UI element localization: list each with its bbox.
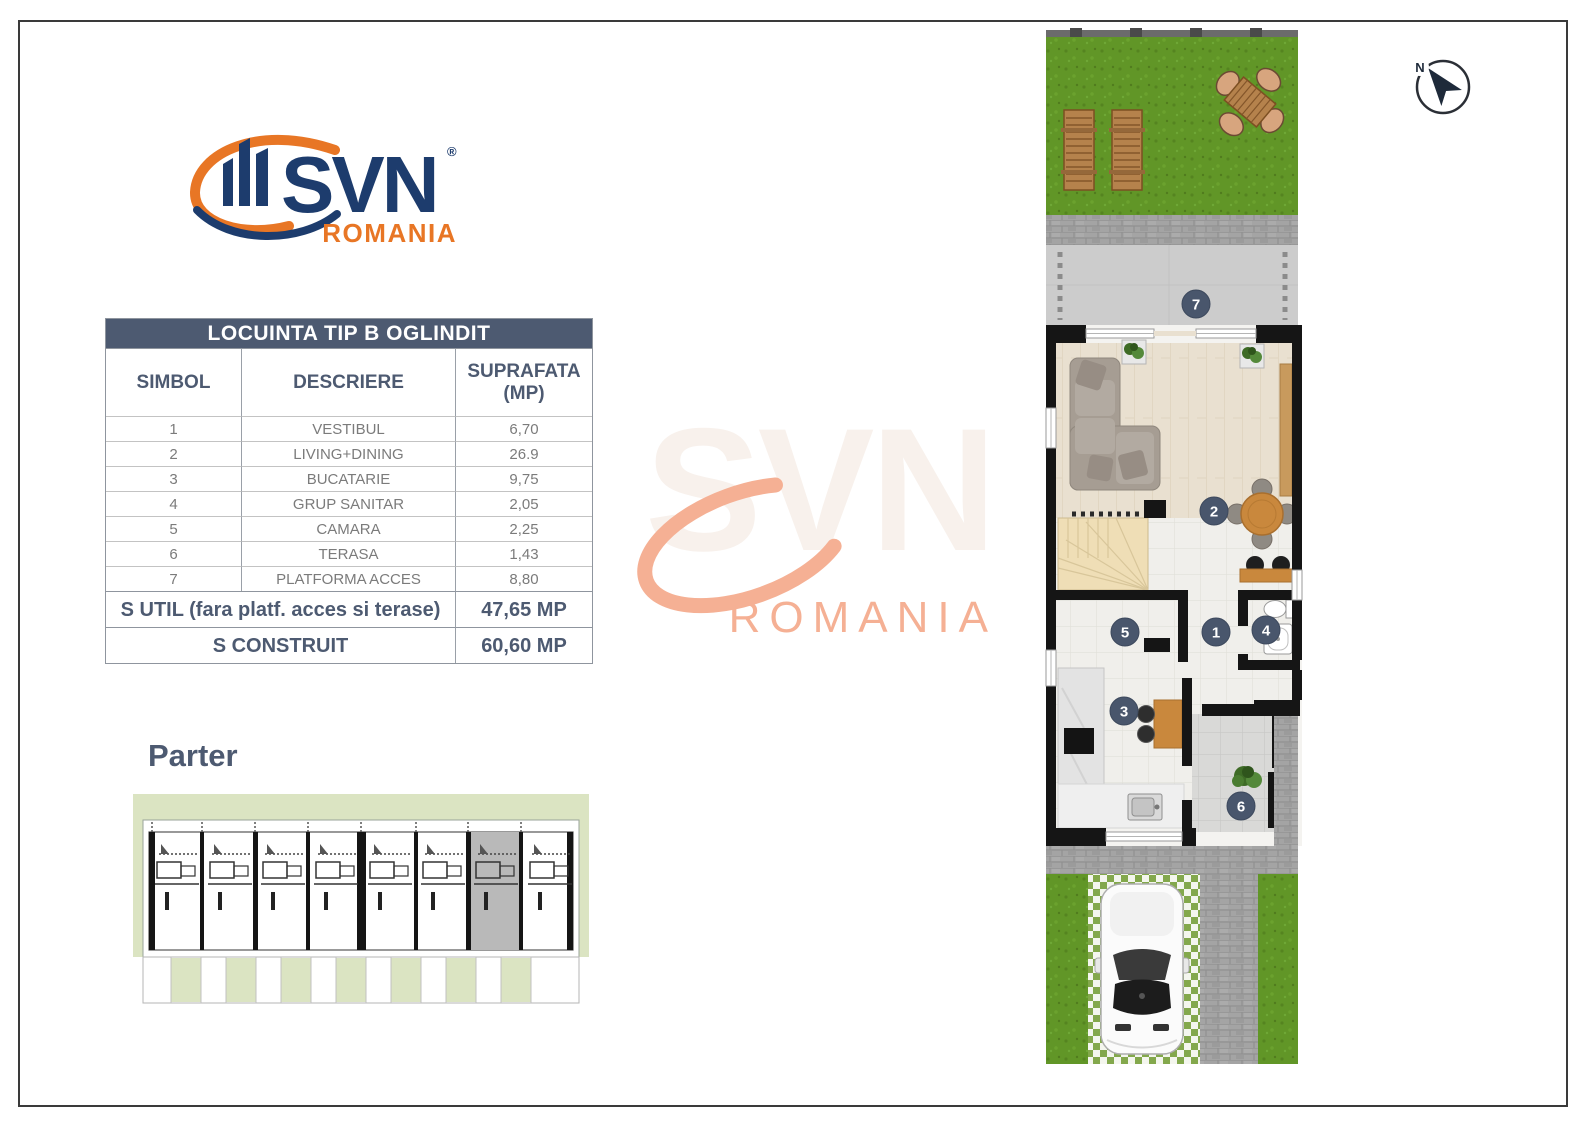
side-path (1274, 716, 1298, 846)
parking-path (1200, 874, 1258, 1064)
row-simbol: 7 (106, 566, 241, 591)
car (1095, 884, 1189, 1054)
compass-north-label: N (1415, 60, 1424, 75)
svg-text:2: 2 (1210, 504, 1218, 521)
svg-text:1: 1 (1212, 625, 1220, 642)
row-suprafata: 8,80 (455, 566, 592, 591)
marker-4: 4 (1252, 616, 1280, 644)
logo-bar-2 (239, 138, 250, 206)
access-path-bottom (1046, 846, 1298, 874)
row-simbol: 2 (106, 441, 241, 466)
site-plan (133, 788, 589, 1006)
summary-construit-value: 60,60 MP (455, 627, 592, 663)
row-descriere: BUCATARIE (241, 466, 455, 491)
site-highlighted-unit (468, 832, 521, 950)
plant-pot-1 (1122, 340, 1146, 364)
table-row: 2 LIVING+DINING 26.9 (106, 441, 592, 466)
row-simbol: 5 (106, 516, 241, 541)
table-row: 1 VESTIBUL 6,70 (106, 416, 592, 441)
row-descriere: PLATFORMA ACCES (241, 566, 455, 591)
row-descriere: VESTIBUL (241, 416, 455, 441)
house (1046, 325, 1302, 846)
row-simbol: 6 (106, 541, 241, 566)
header-suprafata: SUPRAFATA (MP) (455, 348, 592, 416)
logo-brand-text: SVN (281, 140, 437, 229)
marker-1: 1 (1202, 618, 1230, 646)
header-simbol: SIMBOL (106, 348, 241, 416)
marker-7: 7 (1182, 290, 1210, 318)
row-descriere: LIVING+DINING (241, 441, 455, 466)
svg-text:5: 5 (1121, 625, 1129, 642)
header-descriere: DESCRIERE (241, 348, 455, 416)
row-descriere: GRUP SANITAR (241, 491, 455, 516)
sun-lounger-1 (1061, 110, 1097, 190)
row-simbol: 4 (106, 491, 241, 516)
wood-door-panel (1280, 364, 1292, 496)
stove (1064, 728, 1094, 754)
svg-text:3: 3 (1120, 704, 1128, 721)
table-header-row: SIMBOL DESCRIERE SUPRAFATA (MP) (106, 348, 592, 416)
floor-label: Parter (148, 738, 238, 774)
row-simbol: 1 (106, 416, 241, 441)
entry-opening (1154, 331, 1196, 336)
svg-text:4: 4 (1262, 623, 1271, 640)
table-row: 3 BUCATARIE 9,75 (106, 466, 592, 491)
table-row: 7 PLATFORMA ACCES 8,80 (106, 566, 592, 591)
row-suprafata: 2,25 (455, 516, 592, 541)
summary-row-construit: S CONSTRUIT 60,60 MP (106, 627, 592, 663)
sun-lounger-2 (1109, 110, 1145, 190)
row-suprafata: 1,43 (455, 541, 592, 566)
kitchen-table (1154, 700, 1182, 748)
row-descriere: TERASA (241, 541, 455, 566)
parking-grass-left (1046, 874, 1088, 1064)
marker-5: 5 (1111, 618, 1139, 646)
logo-region-text: ROMANIA (322, 218, 457, 248)
garden (1046, 28, 1304, 215)
table-row: 5 CAMARA 2,25 (106, 516, 592, 541)
row-suprafata: 6,70 (455, 416, 592, 441)
marker-3: 3 (1110, 697, 1138, 725)
row-simbol: 3 (106, 466, 241, 491)
marker-2: 2 (1200, 497, 1228, 525)
logo-bar-1 (223, 158, 233, 206)
table-row: 4 GRUP SANITAR 2,05 (106, 491, 592, 516)
area-table: LOCUINTA TIP B OGLINDIT SIMBOL DESCRIERE… (105, 318, 593, 664)
toilet (1264, 601, 1286, 618)
row-suprafata: 26.9 (455, 441, 592, 466)
car-windshield (1113, 949, 1171, 980)
access-path-top (1046, 215, 1298, 245)
north-compass: N (1398, 45, 1488, 135)
table-row: 6 TERASA 1,43 (106, 541, 592, 566)
parking-grass-right (1258, 874, 1298, 1064)
summary-construit-label: S CONSTRUIT (106, 627, 455, 663)
summary-row-util: S UTIL (fara platf. acces si terase) 47,… (106, 591, 592, 627)
row-suprafata: 2,05 (455, 491, 592, 516)
row-descriere: CAMARA (241, 516, 455, 541)
svg-text:6: 6 (1237, 799, 1245, 816)
logo-registered-mark: ® (447, 144, 457, 159)
svg-text:7: 7 (1192, 297, 1200, 314)
summary-util-value: 47,65 MP (455, 591, 592, 627)
floor-plan: 7 2 5 1 4 3 6 (1044, 28, 1304, 1068)
header-suprafata-line2: (MP) (503, 383, 544, 405)
header-suprafata-line1: SUPRAFATA (467, 361, 580, 383)
svn-logo-graphic: SVN ® ROMANIA (185, 120, 485, 260)
access-platform (1046, 245, 1298, 325)
summary-util-label: S UTIL (fara platf. acces si terase) (106, 591, 455, 627)
site-parking-row (143, 957, 579, 1003)
parking (1046, 874, 1298, 1064)
marker-6: 6 (1227, 792, 1255, 820)
logo-bar-3 (256, 148, 268, 206)
svn-logo: SVN ® ROMANIA (185, 120, 485, 260)
plant-pot-2 (1240, 344, 1264, 368)
row-suprafata: 9,75 (455, 466, 592, 491)
table-title: LOCUINTA TIP B OGLINDIT (106, 319, 592, 348)
